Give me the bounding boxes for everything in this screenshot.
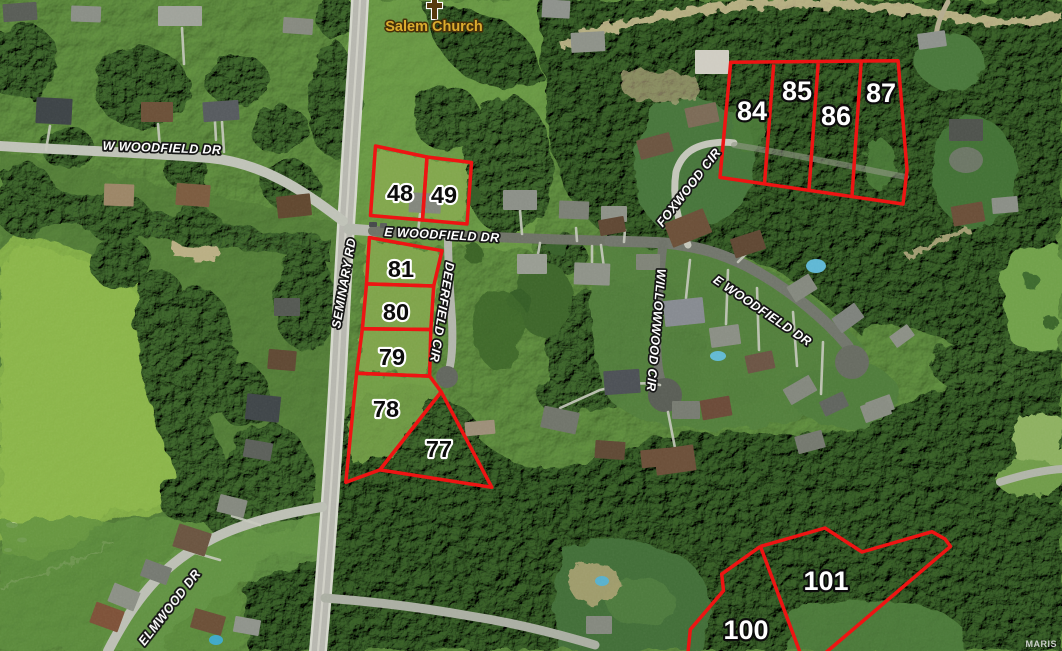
svg-text:85: 85 xyxy=(782,76,812,106)
svg-text:84: 84 xyxy=(737,96,767,126)
svg-text:100: 100 xyxy=(723,615,768,645)
svg-text:48: 48 xyxy=(387,180,413,206)
svg-text:101: 101 xyxy=(803,566,848,596)
svg-text:Salem Church: Salem Church xyxy=(385,19,483,35)
svg-text:80: 80 xyxy=(383,299,409,325)
svg-text:MARIS: MARIS xyxy=(1026,639,1058,649)
svg-text:81: 81 xyxy=(388,256,414,282)
svg-text:87: 87 xyxy=(866,78,896,108)
svg-text:86: 86 xyxy=(821,101,851,131)
svg-text:77: 77 xyxy=(426,436,452,462)
svg-text:78: 78 xyxy=(373,396,399,422)
svg-text:49: 49 xyxy=(431,182,457,208)
svg-text:79: 79 xyxy=(379,344,405,370)
